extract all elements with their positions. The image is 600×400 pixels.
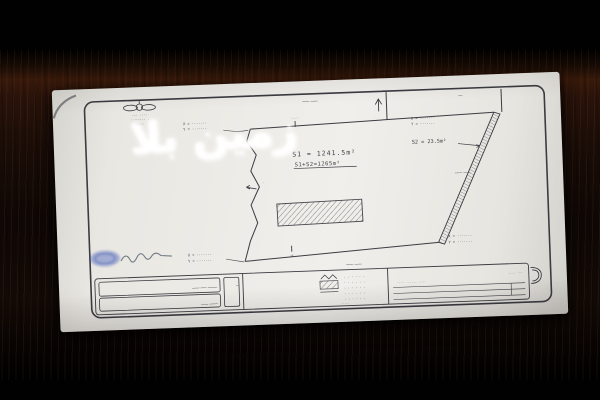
title-block-dots-row1: · · · · · · [344, 275, 365, 280]
s2-strip [434, 112, 505, 244]
west-edge-arrow-icon [246, 185, 256, 189]
logo-left-wing-icon [123, 105, 137, 111]
area-label-s2: S2 = 23.5m² [412, 138, 447, 145]
title-side-cell [224, 277, 240, 307]
neighbor-label-east: ــــــ ــــــ [454, 169, 471, 175]
logo-right-wing-icon [141, 104, 155, 110]
north-arrow-icon [375, 99, 382, 112]
coord-se-y: Y = ······· [449, 240, 473, 245]
scale-bar-zigzag-icon [321, 275, 337, 280]
upper-division-line [386, 92, 387, 119]
logo-text-line3: ····· [135, 122, 145, 126]
boundary-north-line [250, 112, 494, 129]
scale-bar-baseline [320, 292, 338, 293]
survey-plan-sheet: ··· ···· · ······ · ····· [52, 72, 569, 332]
title-block-divider2 [387, 268, 388, 304]
coord-sw-x: X = ······· [188, 253, 212, 258]
coord-se-x: X = ······· [448, 234, 472, 239]
signature-scribble [121, 253, 172, 263]
coord-nw-x: X = ······· [183, 121, 207, 126]
plan-drawing: ··· ···· · ······ · ····· [52, 72, 569, 332]
title-block-scale-note: ····· [341, 302, 350, 306]
photo-scene: ··· ···· · ······ · ····· [0, 0, 600, 400]
coord-sw-y: Y = ······· [188, 259, 212, 264]
s2-hatched-strip [434, 112, 505, 244]
coord-nw-y: Y = ······· [183, 127, 207, 132]
neighbor-label-south: ــــــ ــــــ [345, 260, 362, 266]
area-label-s1: S1 = 1241.5m² [292, 148, 356, 158]
title-block-row2-text: ـــــــ ــــــ [200, 300, 219, 306]
title-block-outline [95, 263, 530, 315]
coord-ne-x: X = ······· [411, 116, 435, 121]
title-block-dots-row3: · · · · · · [344, 286, 365, 291]
approval-stamp [90, 248, 173, 267]
scale-bar-icon [320, 281, 338, 290]
title-block-dots-row5: · · · · · · [344, 297, 365, 302]
dimension-tick-label: ··.·· [290, 116, 299, 120]
binding-bracket-icon [531, 267, 542, 283]
title-block-dots-row4: · · · · · · [344, 291, 365, 296]
title-block-dots-row2: · · · · · · [344, 280, 365, 285]
street-label: ــــ [457, 93, 463, 97]
signature-rule-lines [393, 283, 525, 300]
title-block-right-top: ···· ··· [508, 271, 523, 276]
west-edge-mark: · [262, 181, 264, 185]
boundary-west-line [240, 129, 262, 262]
corner-leader-sw [226, 258, 244, 262]
corner-leader-nw [223, 129, 248, 132]
building-footprint [277, 199, 363, 226]
boundary-south-line [245, 242, 439, 261]
title-block [95, 263, 543, 315]
upper-division-line2 [501, 89, 502, 112]
title-block-row1-text: ــــــــ ـــــ ــــــ [191, 283, 218, 289]
paper-corner-crease [53, 96, 77, 119]
stamp-blob [90, 250, 121, 267]
s2-leader-arrow [458, 143, 480, 148]
title-block-right-label: ···· ······ ···· [397, 280, 426, 285]
neighbor-label-north: ــــــ ــــــ [301, 97, 318, 103]
title-block-divider1 [243, 274, 244, 310]
south-tick-label: ·4· [289, 254, 295, 258]
coord-ne-y: Y = ······· [411, 121, 435, 126]
